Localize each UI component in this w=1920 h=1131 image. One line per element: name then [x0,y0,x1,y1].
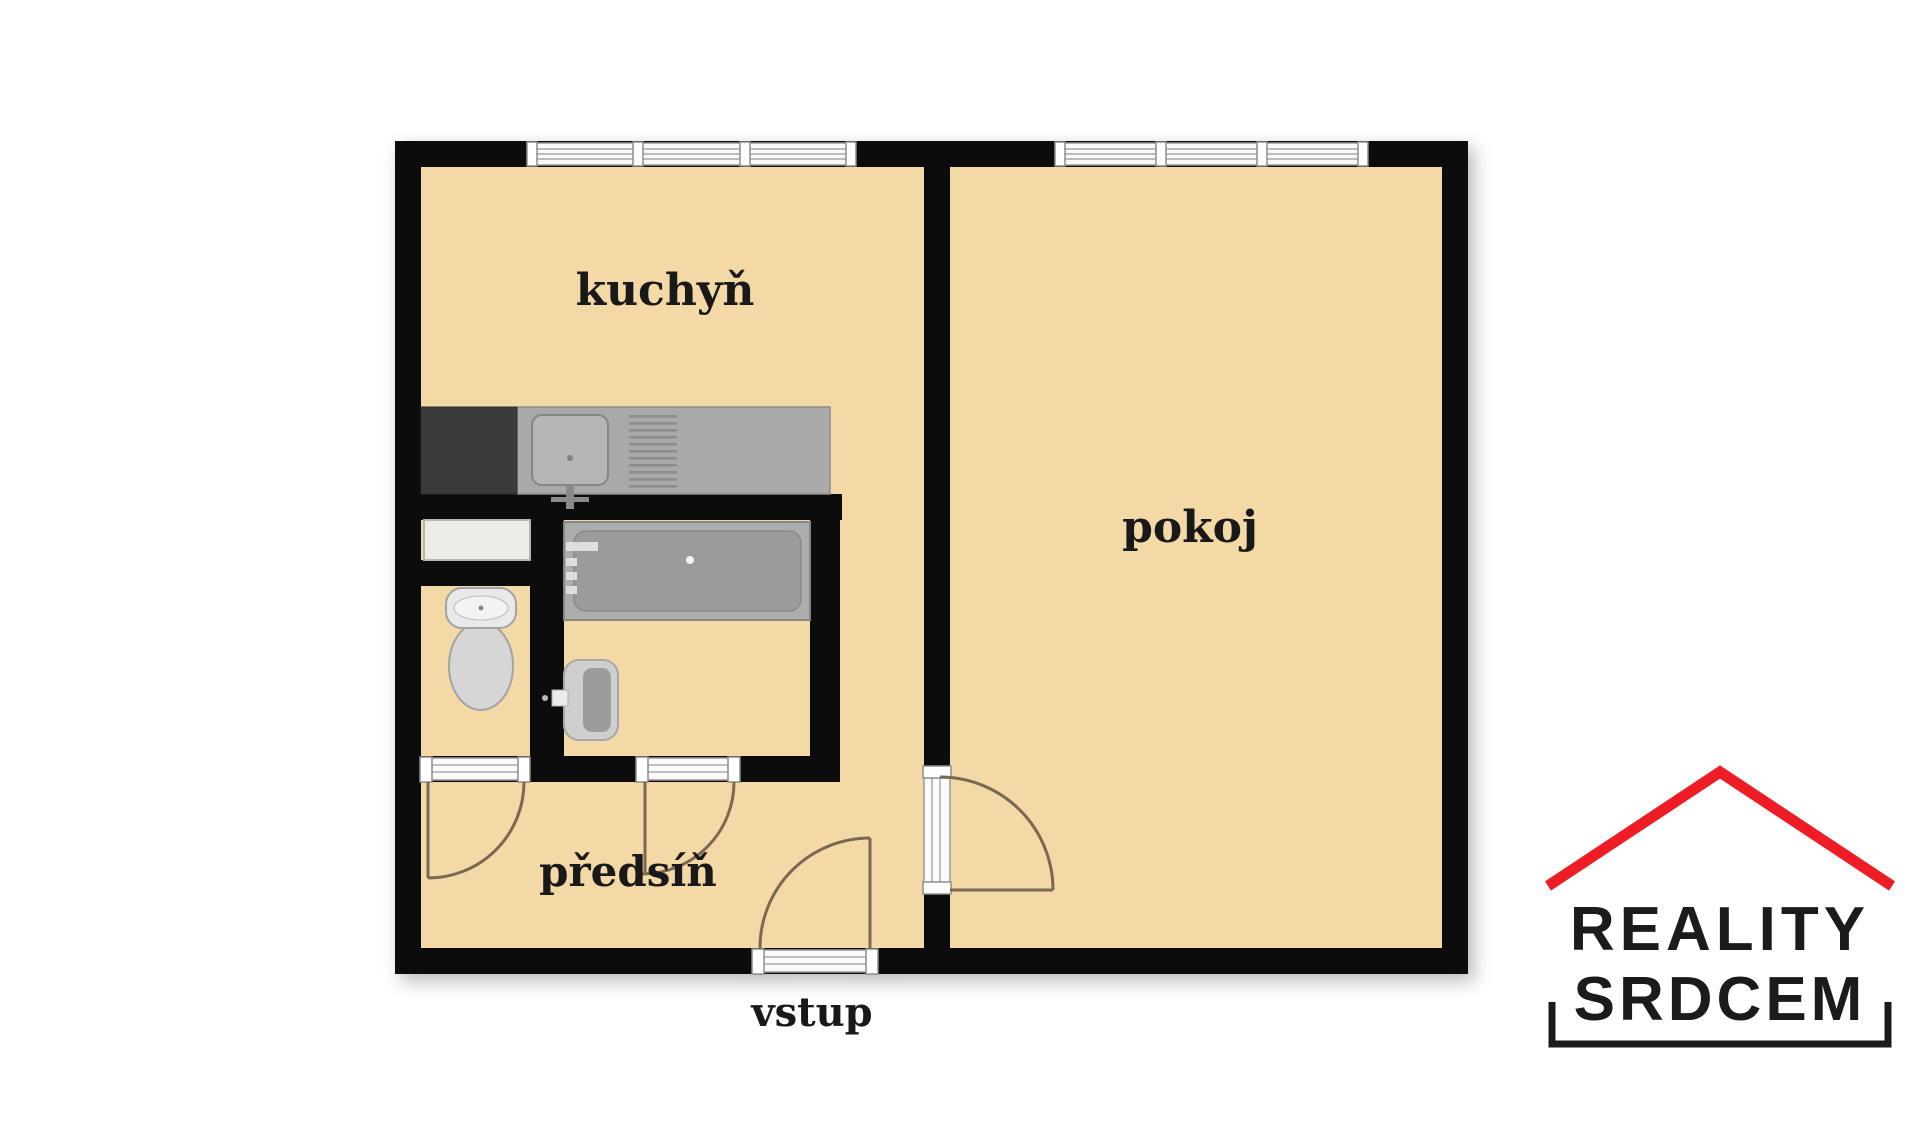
kitchen-bath-wall [421,494,842,520]
storage-niche [424,520,530,560]
outer-wall-right [1442,141,1468,974]
floor-plan-canvas: kuchyň pokoj předsíň vstup REALITY SRDCE… [0,0,1920,1131]
hallway-label: předsíň [539,847,717,896]
stove [421,407,517,494]
living-room-window [1055,142,1368,166]
kitchen-window [527,142,856,166]
logo-roof-icon [1548,772,1892,886]
floor-plan-page: kuchyň pokoj předsíň vstup REALITY SRDCE… [0,0,1920,1131]
logo-line1: REALITY [1570,895,1870,964]
living-room-label: pokoj [1122,502,1258,553]
kitchen-counter [421,407,830,509]
bathtub-faucet [566,542,598,551]
outer-wall-bottom [395,948,1468,974]
washbasin-faucet [552,690,568,706]
bathtub [564,522,810,620]
niche-bottom-wall [421,560,564,586]
outer-wall-left [395,141,421,974]
logo-line2: SRDCEM [1574,965,1867,1034]
entrance-label: vstup [750,989,872,1036]
bathroom-right-wall [810,494,840,782]
kitchen-label: kuchyň [576,265,755,316]
wc-bath-wall [530,494,564,782]
toilet [446,588,516,710]
agency-logo: REALITY SRDCEM [1548,772,1892,1044]
